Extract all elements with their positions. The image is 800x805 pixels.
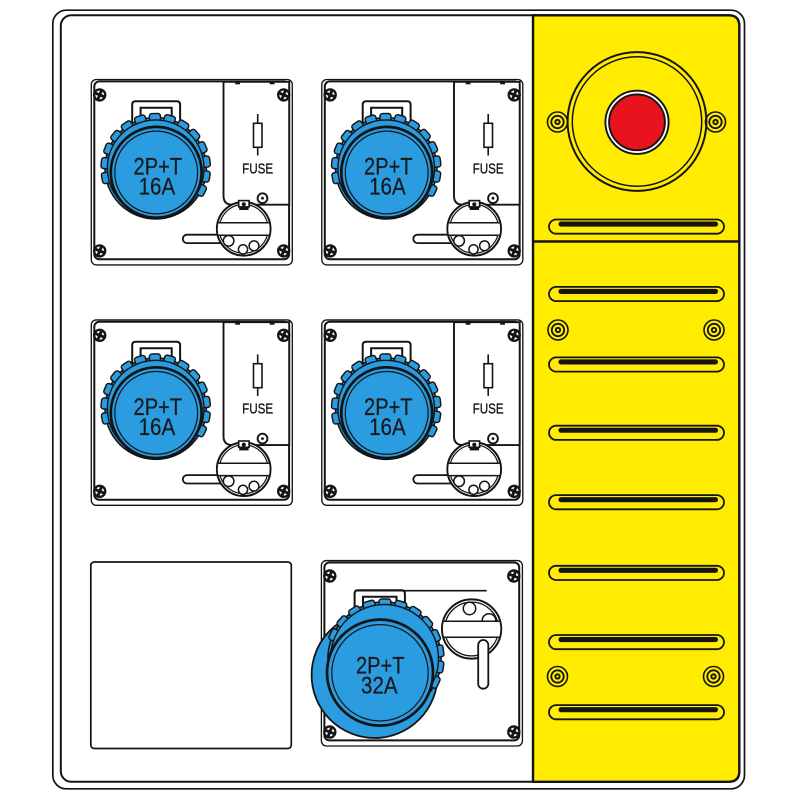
svg-text:16A: 16A	[369, 174, 406, 201]
svg-text:16A: 16A	[369, 414, 406, 441]
svg-text:FUSE: FUSE	[242, 402, 273, 418]
svg-text:FUSE: FUSE	[242, 161, 273, 177]
svg-text:16A: 16A	[139, 174, 176, 201]
svg-text:FUSE: FUSE	[473, 161, 504, 177]
svg-text:32A: 32A	[361, 673, 398, 700]
svg-text:FUSE: FUSE	[473, 402, 504, 418]
svg-text:16A: 16A	[139, 414, 176, 441]
